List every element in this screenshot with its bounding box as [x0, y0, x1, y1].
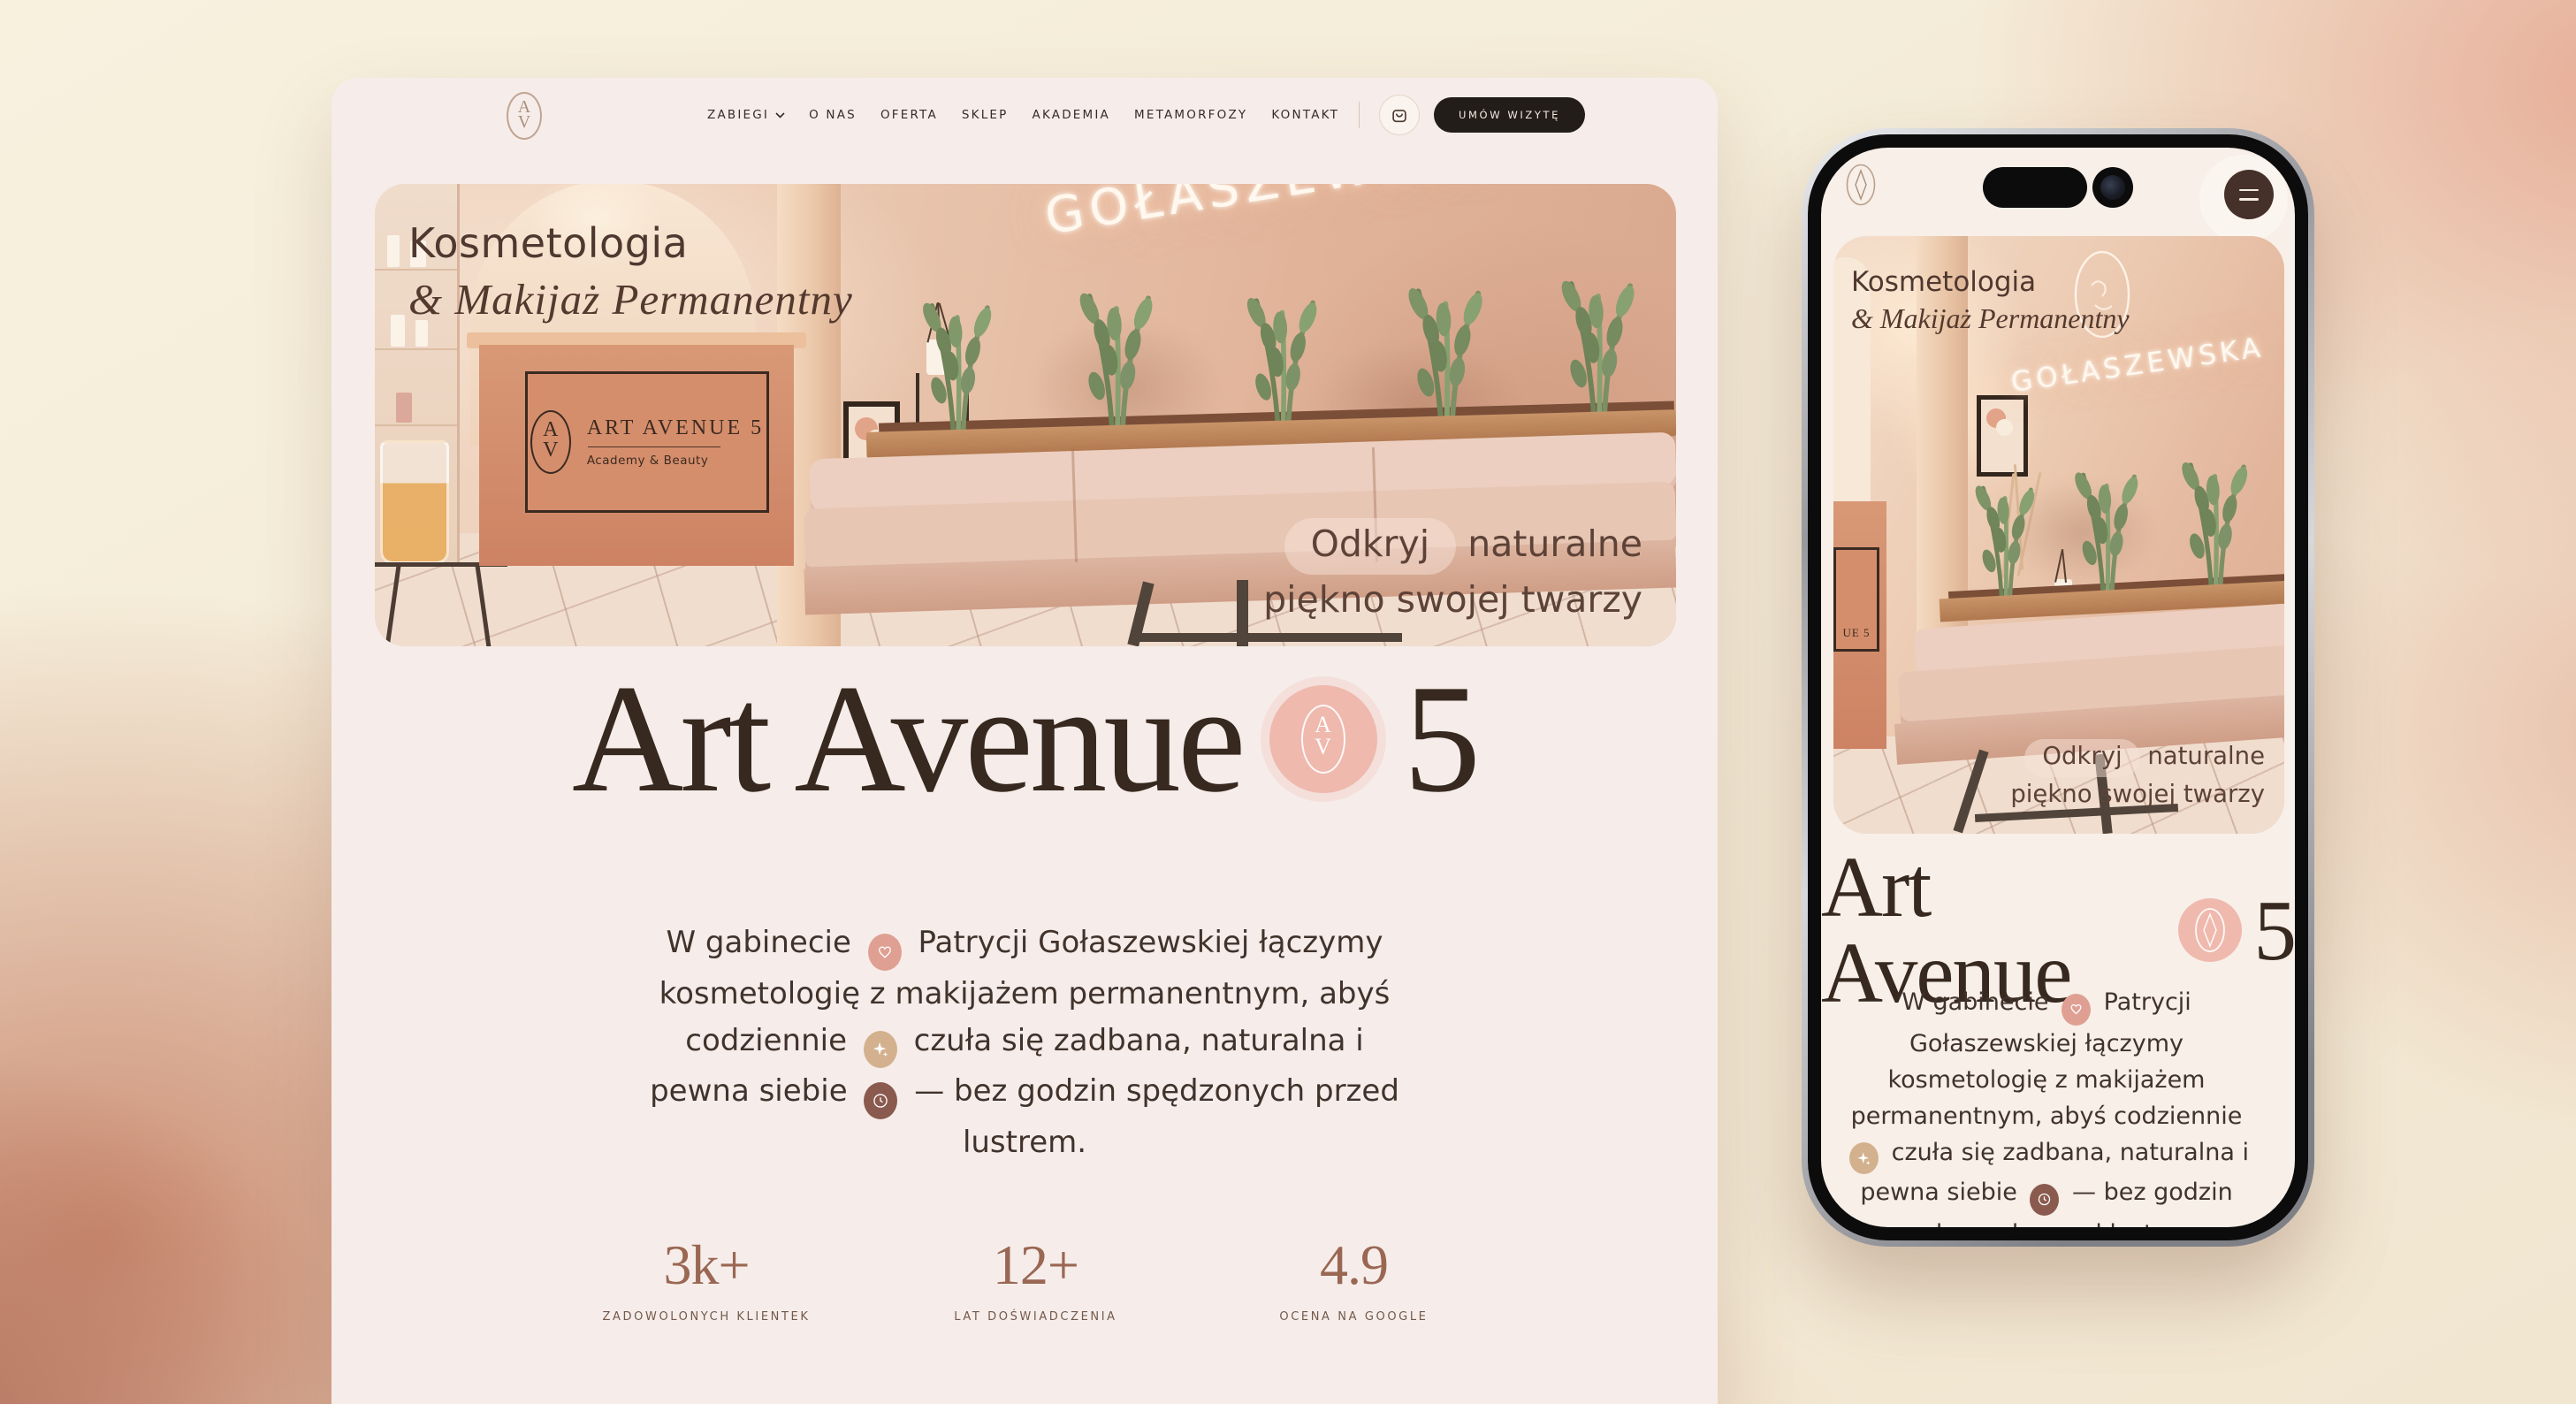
- nav-item-sklep[interactable]: SKLEP: [962, 108, 1009, 122]
- sparkle-icon: [864, 1031, 897, 1068]
- plant: [1374, 272, 1520, 430]
- plant: [1215, 283, 1352, 431]
- badge-ornament: [2178, 898, 2242, 962]
- bench-leg-bar: [1137, 633, 1402, 642]
- desk-sign-title: ART AVENUE 5: [587, 416, 764, 440]
- plant: [2152, 448, 2280, 588]
- overlay-rest: naturalne: [1467, 523, 1642, 565]
- hero-image: GOŁASZEWSKA: [375, 184, 1676, 646]
- paragraph-segment: W gabinecie: [666, 925, 850, 960]
- chevron-down-icon: [775, 112, 785, 118]
- brand-badge: A V: [1269, 685, 1377, 793]
- plant: [1528, 265, 1670, 420]
- hamburger-menu-button[interactable]: [2224, 170, 2274, 219]
- desk-sign-subtitle: Academy & Beauty: [587, 454, 764, 468]
- overlay-line2: piękno swojej twarzy: [2010, 777, 2265, 812]
- book-visit-button[interactable]: UMÓW WIZYTĘ: [1434, 97, 1585, 133]
- stat-label: ZADOWOLONYCH KLIENTEK: [603, 1310, 811, 1324]
- stat-experience: 12+ LAT DOŚWIADCZENIA: [942, 1232, 1128, 1324]
- hero-title-line1: Kosmetologia: [1851, 266, 2130, 298]
- stat-value: 3k+: [603, 1232, 811, 1298]
- plant: [1047, 278, 1188, 432]
- glass-jar: [380, 440, 449, 564]
- stat-rating: 4.9 OCENA NA GOOGLE: [1261, 1232, 1446, 1324]
- presentation-canvas: A V ZABIEGI O NAS OFERTA SKLEP AKADEMIA …: [0, 0, 2576, 1404]
- camera-lens: [2100, 175, 2125, 200]
- hero-image-mobile: GOŁASZEWSKA UE 5: [1833, 236, 2284, 834]
- bag-icon: [1390, 105, 1409, 125]
- page-title: Art Avenue A V 5: [332, 661, 1718, 816]
- navbar: A V ZABIEGI O NAS OFERTA SKLEP AKADEMIA …: [332, 78, 1718, 152]
- stat-value: 4.9: [1261, 1232, 1446, 1298]
- title-part2: 5: [1404, 661, 1478, 816]
- plant: [2046, 459, 2169, 593]
- overlay-highlight: Odkryj: [1284, 518, 1457, 576]
- island-pill: [1983, 167, 2087, 208]
- heart-icon: [2062, 994, 2091, 1026]
- nav-item-oferta[interactable]: OFERTA: [880, 108, 938, 122]
- monogram-v: V: [508, 112, 540, 133]
- brand-badge: [2178, 898, 2242, 962]
- hero-heading: Kosmetologia & Makijaż Permanentny: [408, 219, 853, 324]
- overlay-highlight: Odkryj: [2024, 739, 2139, 777]
- brand-logo[interactable]: [1846, 164, 1876, 206]
- clock-icon: [864, 1082, 897, 1119]
- title-part1: Art Avenue: [572, 661, 1243, 816]
- nav-menu: ZABIEGI O NAS OFERTA SKLEP AKADEMIA META…: [707, 78, 1339, 152]
- nav-right-controls: UMÓW WIZYTĘ: [1359, 78, 1585, 152]
- paragraph-segment: W gabinecie: [1902, 988, 2048, 1016]
- sparkle-icon: [1849, 1142, 1879, 1174]
- hero-overlay-text: Odkryj naturalne piękno swojej twarzy: [1263, 518, 1642, 625]
- wall-art-frame: [1977, 395, 2028, 477]
- sign-divider: [588, 446, 720, 448]
- nav-item-akademia[interactable]: AKADEMIA: [1033, 108, 1110, 122]
- hamburger-icon: [2239, 189, 2259, 192]
- hero-title-line2: & Makijaż Permanentny: [408, 274, 853, 324]
- plant: [892, 288, 1025, 434]
- overlay-rest: naturalne: [2147, 742, 2265, 770]
- hero-overlay-text: Odkryj naturalne piękno swojej twarzy: [2010, 739, 2265, 811]
- paragraph-segment: — bez godzin spędzonych przed lustrem.: [914, 1073, 1399, 1160]
- nav-item-label: ZABIEGI: [707, 108, 769, 122]
- nav-item-metamorfozy[interactable]: METAMORFOZY: [1134, 108, 1247, 122]
- nav-item-zabiegi[interactable]: ZABIEGI: [707, 108, 785, 122]
- clock-icon: [2030, 1184, 2059, 1216]
- desktop-mockup: A V ZABIEGI O NAS OFERTA SKLEP AKADEMIA …: [332, 78, 1718, 1404]
- desk-sign: UE 5: [1833, 547, 1879, 652]
- sign-monogram: A V: [530, 410, 571, 474]
- title-part2: 5: [2254, 888, 2296, 973]
- cart-button[interactable]: [1379, 95, 1420, 135]
- intro-paragraph: W gabinecie Patrycji Gołaszewskiej łączy…: [636, 919, 1414, 1166]
- stats-row: 3k+ ZADOWOLONYCH KLIENTEK 12+ LAT DOŚWIA…: [332, 1232, 1718, 1324]
- stat-value: 12+: [942, 1232, 1128, 1298]
- overlay-line2: piękno swojej twarzy: [1263, 575, 1642, 625]
- dynamic-island: [1983, 167, 2133, 208]
- hero-title-line1: Kosmetologia: [408, 219, 853, 267]
- heart-icon: [868, 934, 902, 971]
- desk-sign: A V ART AVENUE 5 Academy & Beauty: [525, 371, 769, 513]
- stat-label: LAT DOŚWIADCZENIA: [942, 1310, 1128, 1324]
- nav-item-kontakt[interactable]: KONTAKT: [1271, 108, 1339, 122]
- nav-item-o-nas[interactable]: O NAS: [809, 108, 857, 122]
- hero-title-line2: & Makijaż Permanentny: [1851, 302, 2130, 335]
- menu-button-halo: [2199, 155, 2288, 243]
- phone-mockup: GOŁASZEWSKA UE 5: [1802, 128, 2314, 1247]
- stat-label: OCENA NA GOOGLE: [1261, 1310, 1446, 1324]
- phone-bezel: GOŁASZEWSKA UE 5: [1808, 134, 2308, 1240]
- stat-clients: 3k+ ZADOWOLONYCH KLIENTEK: [603, 1232, 811, 1324]
- brand-logo[interactable]: A V: [507, 92, 542, 140]
- intro-paragraph-mobile: W gabinecie Patrycji Gołaszewskiej łączy…: [1841, 984, 2252, 1227]
- hero-heading: Kosmetologia & Makijaż Permanentny: [1851, 266, 2130, 335]
- nav-divider: [1359, 102, 1360, 128]
- phone-screen: GOŁASZEWSKA UE 5: [1821, 148, 2295, 1227]
